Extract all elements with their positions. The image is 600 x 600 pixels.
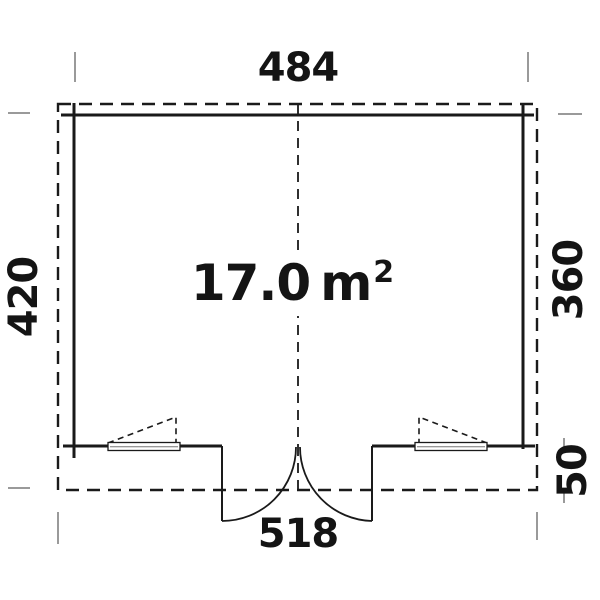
window-right-swing	[419, 417, 487, 443]
dimension-top-width: 484	[258, 48, 339, 88]
dimension-right-porch-depth: 50	[553, 444, 593, 498]
dimension-left-height: 420	[4, 257, 44, 338]
floor-plan-canvas: 484 518 420 360 50 17.0m2	[0, 0, 600, 600]
window-left-swing	[108, 417, 176, 443]
door-swing-arc-right	[300, 447, 372, 521]
area-value: 17.0	[191, 254, 310, 312]
area-exponent: 2	[373, 255, 393, 290]
dimension-right-height: 360	[549, 240, 589, 321]
door-swing-arc-left	[222, 447, 296, 521]
dimension-bottom-width: 518	[258, 514, 339, 554]
area-label: 17.0m2	[181, 250, 403, 316]
area-unit: m	[320, 254, 371, 312]
